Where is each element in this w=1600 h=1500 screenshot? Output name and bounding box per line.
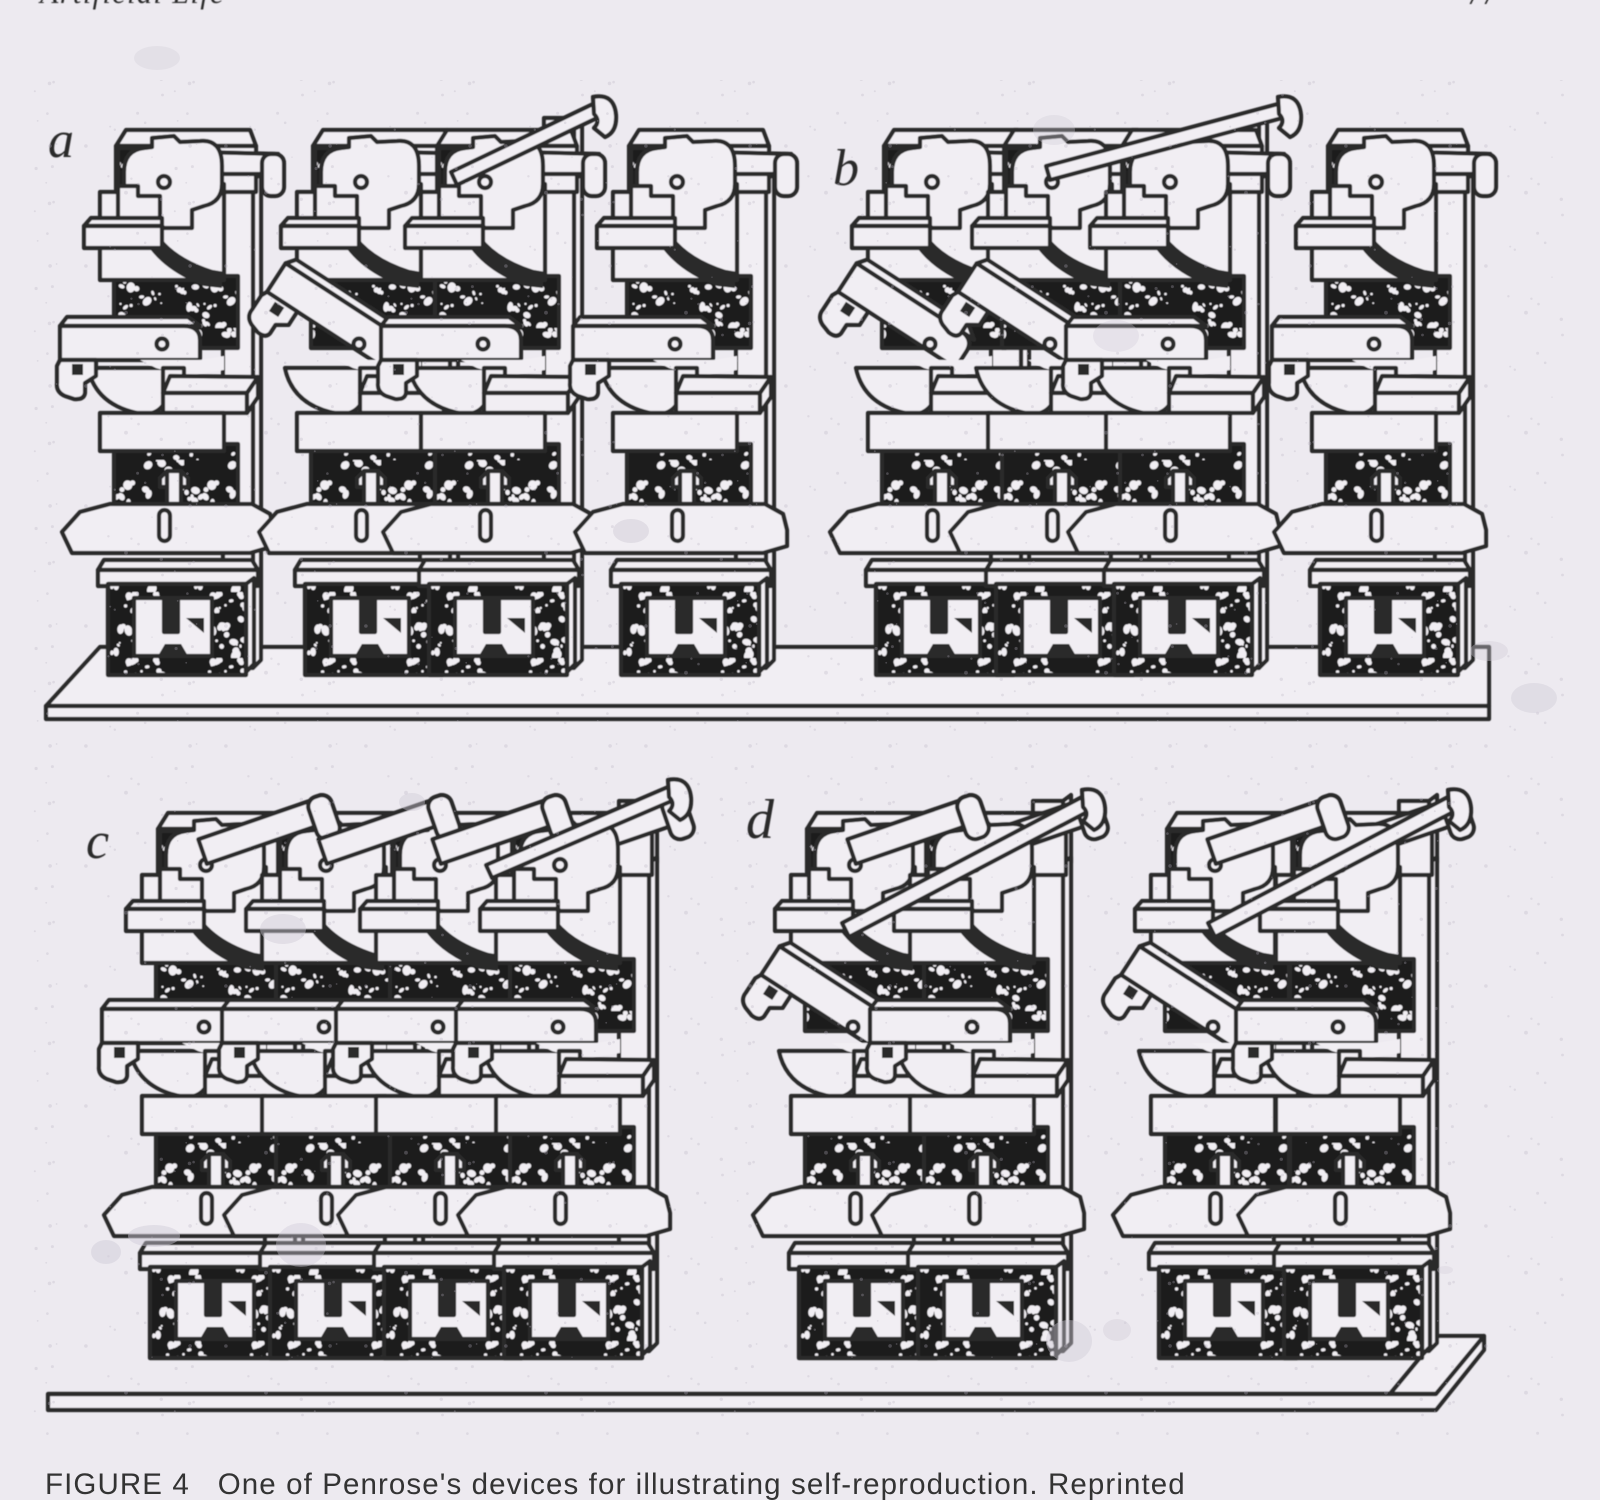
svg-text:FIGURE 4 One of Penrose's de: FIGURE 4 One of Penrose's devices for il… xyxy=(45,1468,1186,1500)
svg-text:77: 77 xyxy=(1466,0,1496,11)
svg-text:Artificial Life: Artificial Life xyxy=(38,0,225,10)
